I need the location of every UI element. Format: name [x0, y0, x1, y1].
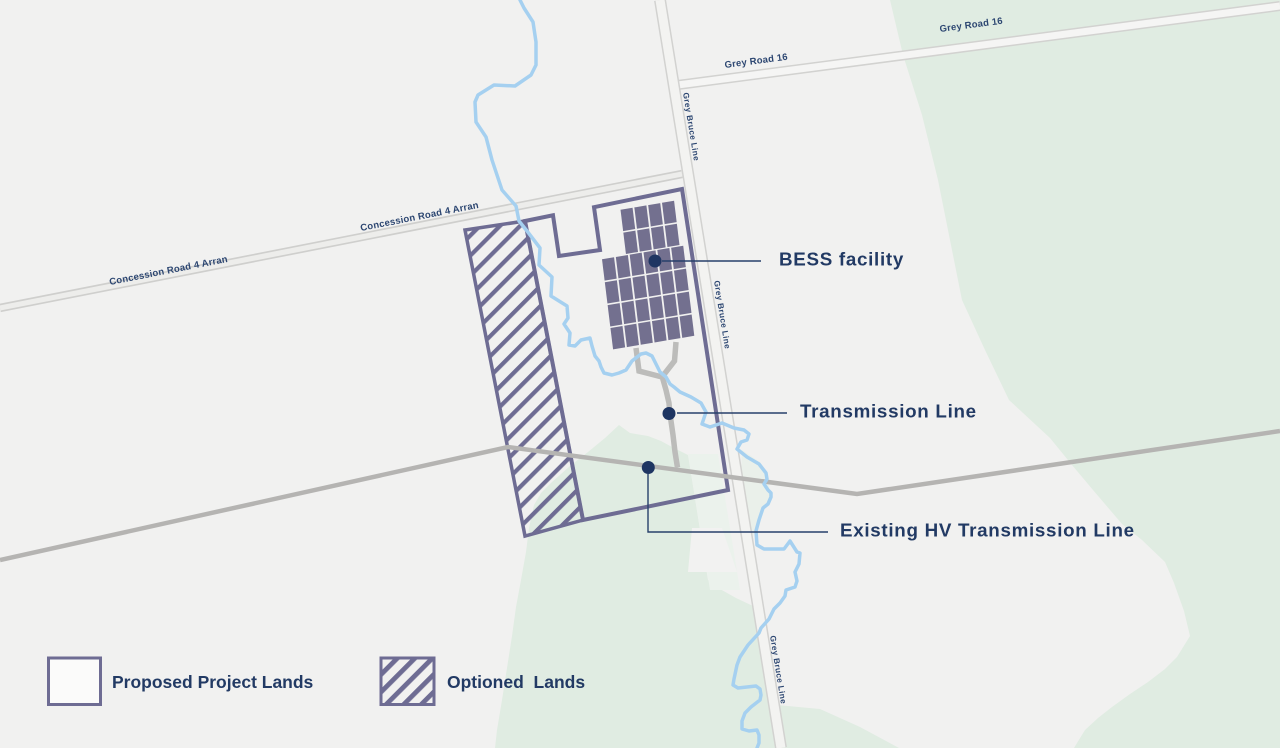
svg-text:Existing HV Transmission Line: Existing HV Transmission Line: [840, 520, 1135, 541]
svg-text:Optioned Lands: Optioned Lands: [447, 672, 585, 692]
svg-text:Proposed Project Lands: Proposed Project Lands: [112, 672, 314, 692]
svg-text:Transmission Line: Transmission Line: [800, 401, 977, 422]
svg-text:BESS facility: BESS facility: [779, 249, 904, 270]
